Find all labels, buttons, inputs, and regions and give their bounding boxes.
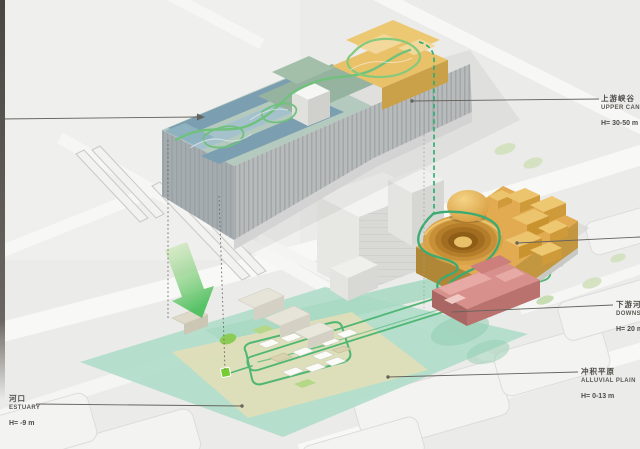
annotation-downstream-zh: 下游河道 [616, 300, 640, 309]
annotation-alluvial-plain-zh: 冲积平原 [581, 367, 636, 376]
annotation-estuary: 河口 ESTUARY H= -9 m [9, 394, 40, 429]
annotation-downstream-height: H= 20 m [616, 326, 640, 335]
annotation-alluvial-plain-en: ALLUVIAL PLAIN [581, 378, 636, 386]
annotation-alluvial-plain: 冲积平原 ALLUVIAL PLAIN H= 0-13 m [581, 367, 636, 402]
dome-pavilion [447, 190, 489, 223]
annotation-downstream: 下游河道 DOWNSTREAM H= 20 m [616, 300, 640, 335]
annotation-upper-canyon-height: H= 30-50 m [601, 120, 640, 129]
annotation-estuary-en: ESTUARY [9, 405, 40, 413]
flow-node-square [220, 367, 231, 378]
annotation-upper-canyon: 上游峡谷 UPPER CANYON H= 30-50 m [601, 94, 640, 129]
annotation-downstream-en: DOWNSTREAM [616, 311, 640, 319]
annotation-estuary-zh: 河口 [9, 394, 40, 403]
annotation-upper-canyon-en: UPPER CANYON [601, 105, 640, 113]
annotation-alluvial-plain-height: H= 0-13 m [581, 393, 636, 402]
annotation-upper-canyon-zh: 上游峡谷 [601, 94, 640, 103]
diagram-canvas [0, 0, 640, 449]
annotation-estuary-height: H= -9 m [9, 420, 40, 429]
diagram-stage: 上游峡谷 UPPER CANYON H= 30-50 m 下游河道 DOWNST… [0, 0, 640, 449]
page-edge-strip [0, 0, 5, 400]
